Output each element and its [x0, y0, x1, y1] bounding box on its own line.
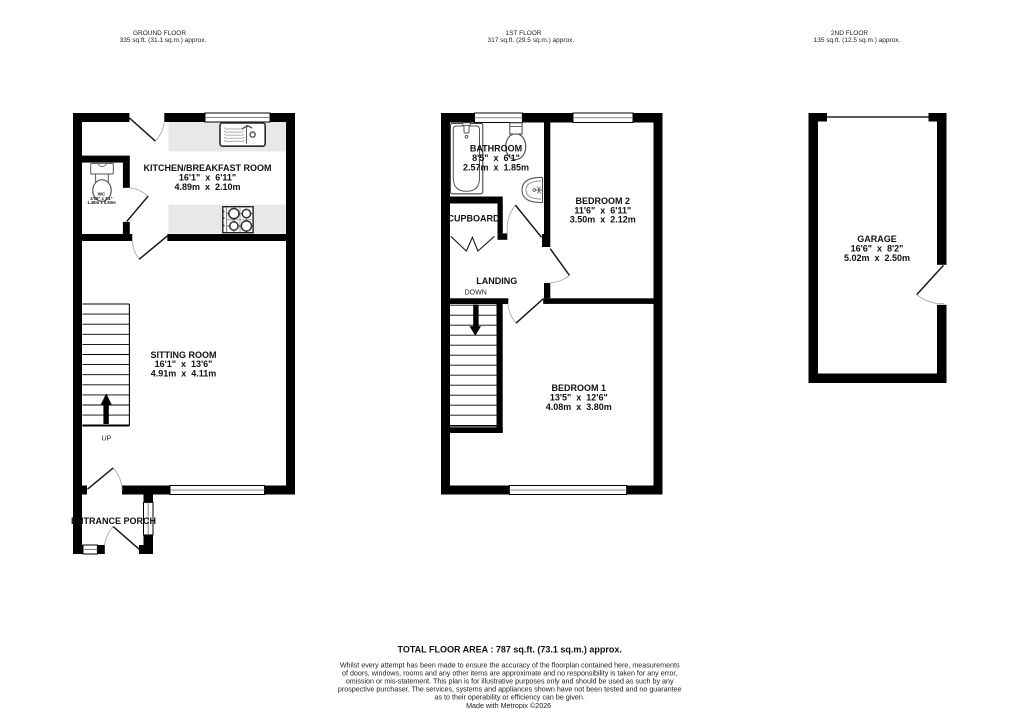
svg-text:CUPBOARD: CUPBOARD [447, 214, 500, 224]
svg-text:KITCHEN/BREAKFAST ROOM: KITCHEN/BREAKFAST ROOM [144, 163, 272, 173]
svg-text:2.57m x 1.85m: 2.57m x 1.85m [463, 162, 529, 172]
svg-text:as to their operability or eff: as to their operability or efficiency ca… [435, 694, 585, 702]
svg-text:1ST FLOOR: 1ST FLOOR [505, 30, 541, 37]
svg-text:4.89m x 2.10m: 4.89m x 2.10m [174, 182, 240, 192]
svg-text:TOTAL FLOOR AREA : 787 sq.ft.: TOTAL FLOOR AREA : 787 sq.ft. (73.1 sq.m… [398, 645, 622, 655]
svg-text:4.91m x 4.11m: 4.91m x 4.11m [151, 368, 217, 378]
svg-text:ENTRANCE PORCH: ENTRANCE PORCH [71, 516, 156, 526]
svg-text:of doors, windows, rooms and a: of doors, windows, rooms and any other i… [342, 669, 677, 677]
svg-text:335 sq.ft. (31.1 sq.m.) approx: 335 sq.ft. (31.1 sq.m.) approx. [120, 37, 207, 44]
svg-text:317 sq.ft. (29.5 sq.m.) approx: 317 sq.ft. (29.5 sq.m.) approx. [488, 37, 575, 44]
svg-text:Whilst every attempt has been: Whilst every attempt has been made to en… [340, 661, 680, 669]
svg-text:135 sq.ft. (12.5 sq.m.) approx: 135 sq.ft. (12.5 sq.m.) approx. [814, 37, 901, 44]
svg-text:GROUND FLOOR: GROUND FLOOR [133, 30, 186, 37]
svg-text:3.50m x 2.12m: 3.50m x 2.12m [570, 215, 636, 225]
svg-text:prospective purchaser. The ser: prospective purchaser. The services, sys… [338, 686, 682, 694]
svg-text:DOWN: DOWN [465, 289, 487, 296]
svg-text:5.02m x 2.50m: 5.02m x 2.50m [844, 253, 910, 263]
svg-text:omission or mis-statement. Thi: omission or mis-statement. This plan is … [346, 678, 674, 686]
svg-text:1.48m x 0.93m: 1.48m x 0.93m [87, 200, 116, 205]
svg-text:UP: UP [102, 435, 112, 442]
svg-text:2ND FLOOR: 2ND FLOOR [831, 30, 869, 37]
svg-text:LANDING: LANDING [476, 276, 517, 286]
svg-text:Made with Metropix ©2026: Made with Metropix ©2026 [466, 702, 551, 709]
svg-text:4.08m x 3.80m: 4.08m x 3.80m [546, 402, 612, 412]
